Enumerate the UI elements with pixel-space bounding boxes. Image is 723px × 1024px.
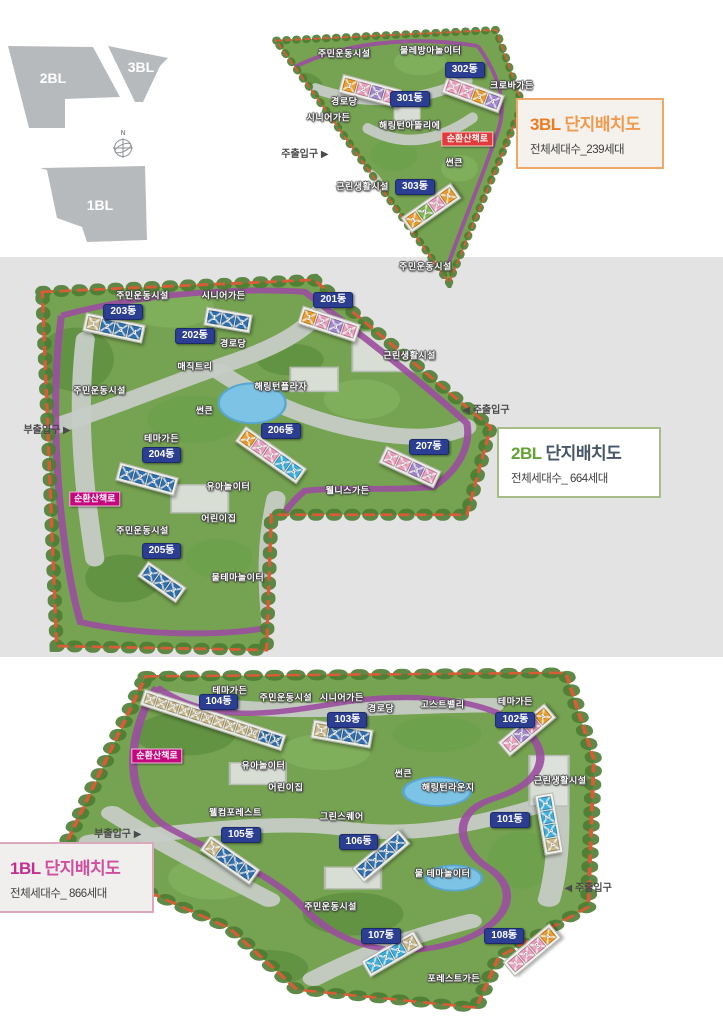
block-name: 2BL (511, 444, 541, 463)
entrance-label: 부출입구 ▶ (23, 426, 70, 436)
facility-label: 주민운동시설 (73, 387, 126, 396)
household-count: 전체세대수_ 664세대 (511, 470, 647, 486)
siteplan-2bl: 123412312341234123451234123주민운동시설시니어가든20… (28, 260, 505, 658)
entrance-label: 주출입구 ▶ (281, 150, 328, 160)
walkway-badge: 순환산책로 (69, 491, 120, 506)
building-unit: 3 (341, 728, 356, 743)
building-number-badge: 202동 (175, 328, 215, 344)
building-number-badge: 203동 (103, 304, 143, 320)
facility-label: 테마가든 (144, 435, 179, 444)
building-number-badge: 108동 (484, 928, 524, 944)
facility-label: 시니어가든 (307, 113, 351, 122)
facility-label: 근린생활시설 (383, 351, 436, 360)
building-unit: 1 (314, 723, 329, 738)
building-unit: 4 (355, 730, 370, 745)
plan-title: 3BL 단지배치도 (530, 110, 650, 135)
building-number-badge: 205동 (142, 543, 182, 559)
facility-label: 고스트밸리 (421, 701, 465, 710)
facility-label: 그린스퀘어 (320, 812, 364, 821)
facility-label: 유아놀이터 (241, 762, 285, 771)
facility-label: 근린생활시설 (336, 182, 389, 191)
facility-label: 주민운동시설 (318, 49, 371, 58)
facility-label: 근린생활시설 (534, 776, 587, 785)
building-unit: 4 (160, 476, 176, 492)
facility-label: 물테마놀이터 (212, 574, 265, 583)
svg-text:2BL: 2BL (40, 70, 67, 86)
building-number-badge: 107동 (361, 928, 401, 944)
facility-label: 시니어가든 (202, 291, 246, 300)
facility-label: 주민운동시설 (304, 902, 357, 911)
building-unit: 1 (86, 316, 101, 331)
walkway-badge: 순환산책로 (131, 748, 182, 763)
svg-text:1BL: 1BL (87, 197, 114, 213)
building-number-badge: 201동 (313, 292, 353, 308)
household-count: 전체세대수_ 866세대 (10, 885, 140, 901)
facility-label: 어린이집 (201, 514, 236, 523)
building-number-badge: 303동 (395, 179, 435, 195)
facility-label: 어린이집 (268, 784, 303, 793)
facility-label: 웰컴포레스트 (209, 809, 262, 818)
facility-label: 주민운동시설 (399, 262, 452, 271)
block-name: 3BL (530, 115, 560, 134)
facility-label: 경로당 (331, 97, 357, 106)
svg-text:3BL: 3BL (128, 59, 155, 75)
building-number-badge: 105동 (221, 827, 261, 843)
titlebox-2bl: 2BL 단지배치도 전체세대수_ 664세대 (497, 427, 661, 498)
facility-label: 경로당 (220, 339, 246, 348)
facility-label: 해링턴플라자 (254, 383, 307, 392)
facility-label: 경로당 (368, 704, 394, 713)
household-count: 전체세대수_239세대 (530, 141, 650, 157)
building-number-badge: 102동 (495, 712, 535, 728)
facility-label: 주민운동시설 (116, 526, 169, 535)
titlebox-3bl: 3BL 단지배치도 전체세대수_239세대 (516, 98, 664, 169)
facility-label: 웰니스가든 (326, 486, 370, 495)
building-number-badge: 301동 (390, 91, 430, 107)
building-number-badge: 101동 (490, 812, 530, 828)
svg-text:N: N (120, 130, 125, 137)
facility-label: 크로바가든 (490, 81, 534, 90)
entrance-label: ◀ 주출입구 (565, 884, 612, 894)
building-unit: 3 (235, 315, 250, 330)
facility-label: 물 테마놀이터 (415, 870, 471, 879)
facility-label: 유아놀이터 (206, 482, 250, 491)
facility-label: 주민운동시설 (116, 291, 169, 300)
facility-label: 썬큰 (196, 407, 214, 416)
apartment-siteplan-poster: 2BL3BL1BLN 123412341234주민운동시설물레방아놀이터302동… (0, 0, 723, 1024)
building-number-badge: 104동 (199, 694, 239, 710)
plan-title: 2BL 단지배치도 (511, 439, 647, 464)
facility-label: 매직트리 (177, 363, 212, 372)
block-name: 1BL (10, 859, 40, 878)
building-number-badge: 204동 (142, 447, 182, 463)
building-unit: 3 (113, 321, 128, 336)
building-number-badge: 103동 (327, 712, 367, 728)
facility-label: 물레방아놀이터 (400, 47, 461, 56)
title-text: 단지배치도 (565, 115, 641, 134)
building-unit: 2 (99, 318, 114, 333)
building-unit: 3 (543, 823, 558, 838)
title-text: 단지배치도 (546, 444, 622, 463)
facility-label: 썬큰 (445, 158, 463, 167)
facility-label: 해링턴라운지 (422, 784, 475, 793)
facility-label: 테마가든 (498, 697, 533, 706)
location-key-map: 2BL3BL1BLN (5, 30, 245, 255)
walkway-badge: 순환산책로 (442, 132, 493, 147)
building-number-badge: 206동 (261, 423, 301, 439)
titlebox-1bl: 1BL 단지배치도 전체세대수_ 866세대 (0, 842, 154, 913)
building-unit: 4 (127, 324, 142, 339)
title-text: 단지배치도 (45, 859, 121, 878)
building-unit: 4 (545, 837, 560, 852)
entrance-label: ◀ 주출입구 (462, 406, 509, 416)
facility-label: 포레스트가든 (427, 974, 480, 983)
building-number-badge: 207동 (409, 439, 449, 455)
facility-label: 시니어가든 (320, 694, 364, 703)
building-number-badge: 302동 (445, 62, 485, 78)
facility-label: 썬큰 (395, 769, 413, 778)
facility-label: 해링턴아뜰리에 (379, 121, 440, 130)
siteplan-3bl: 123412341234주민운동시설물레방아놀이터302동크로바가든경로당301… (263, 22, 525, 288)
building-unit: 2 (540, 810, 555, 825)
building-number-badge: 106동 (339, 834, 379, 850)
entrance-label: 부출입구 ▶ (94, 830, 141, 840)
building-unit: 1 (538, 796, 553, 811)
plan-title: 1BL 단지배치도 (10, 854, 140, 879)
building-unit: 12 (269, 733, 283, 747)
facility-label: 주민운동시설 (259, 694, 312, 703)
